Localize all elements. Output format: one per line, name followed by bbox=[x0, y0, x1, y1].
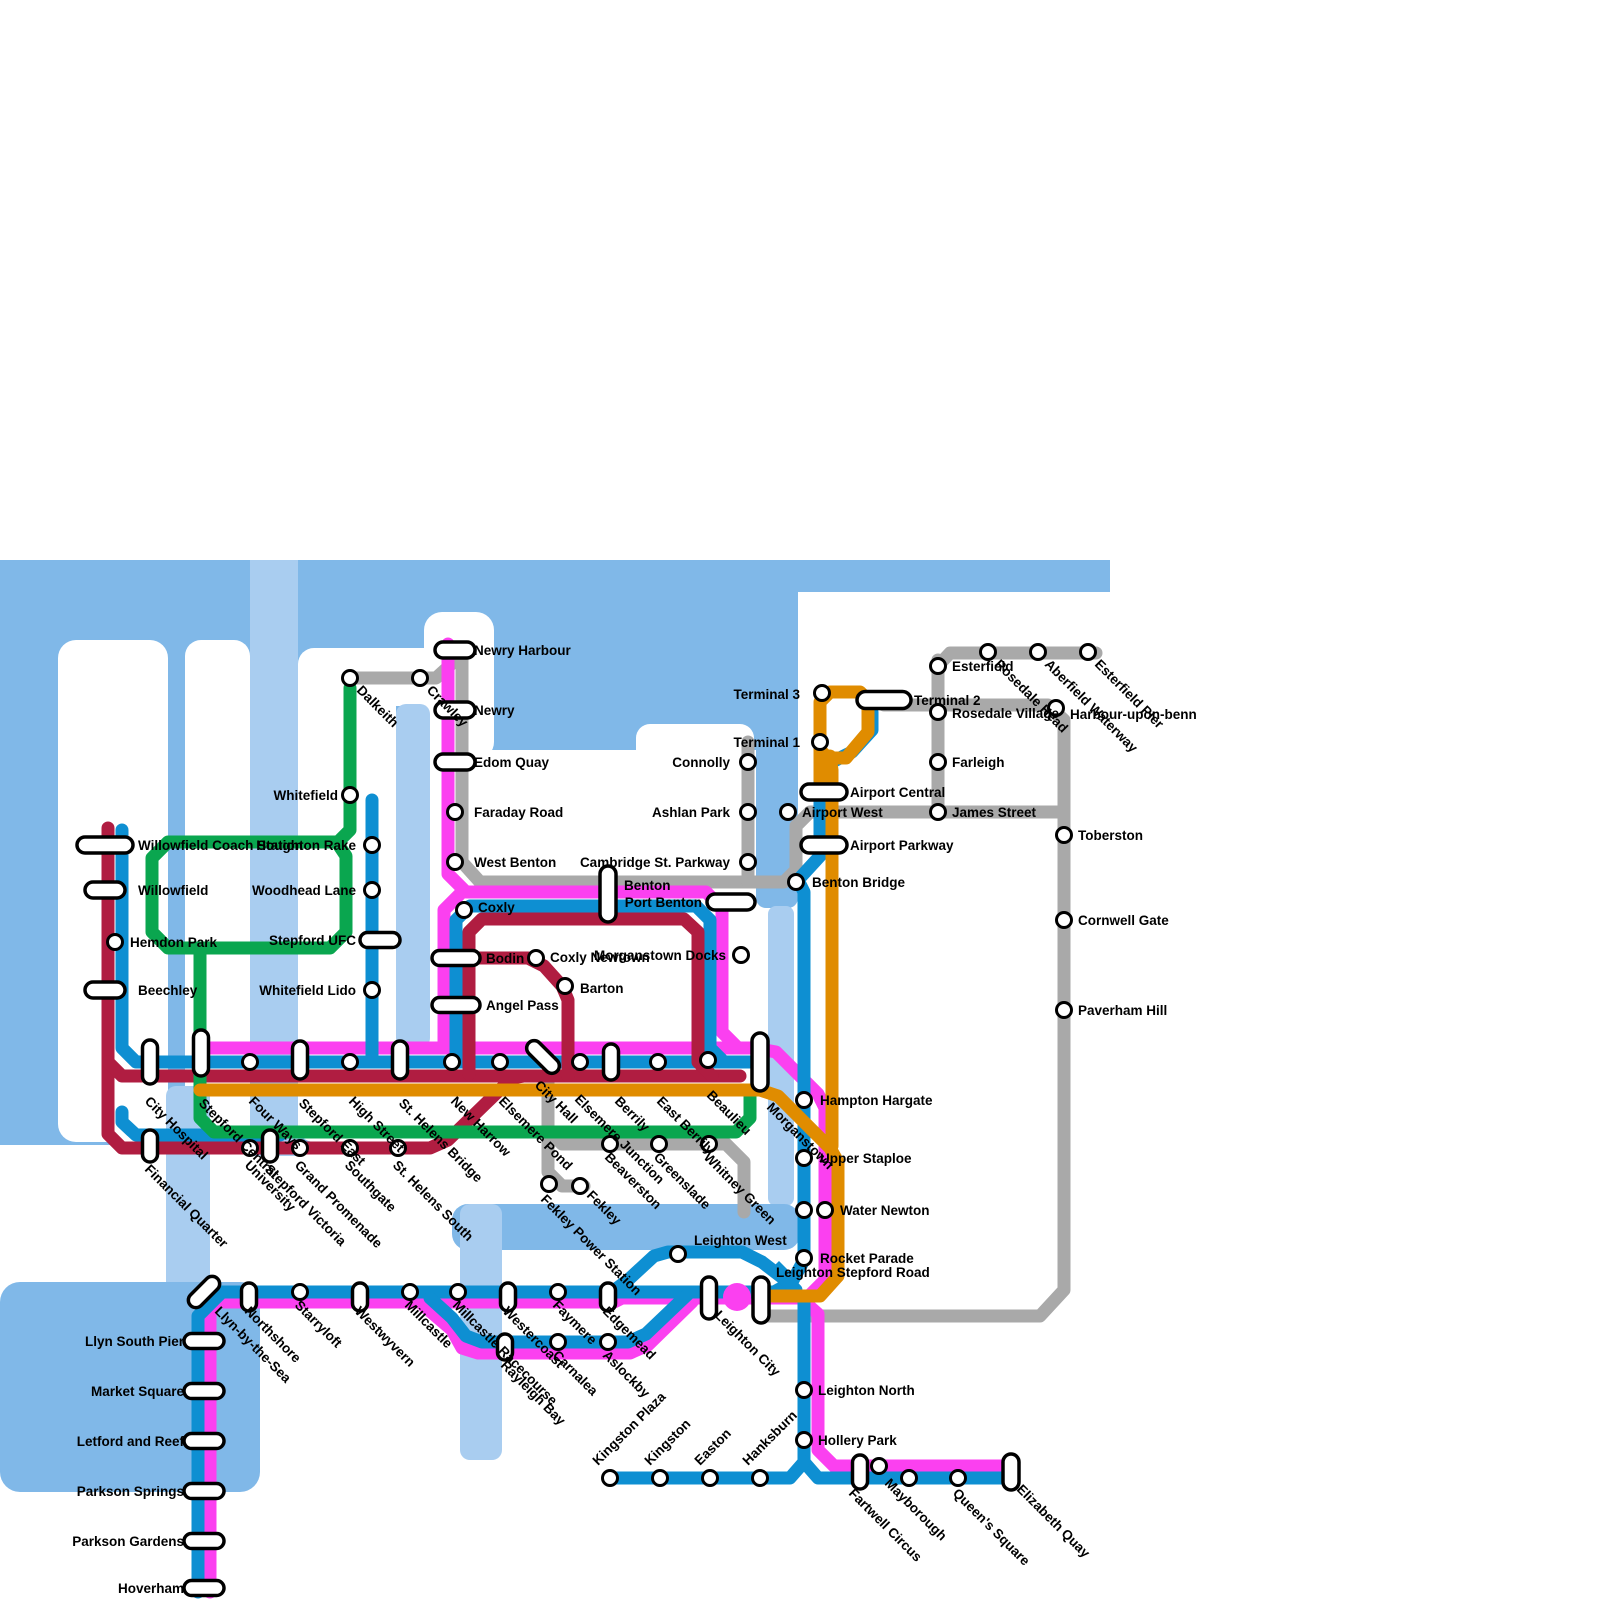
station-label-newry: Newry bbox=[474, 703, 515, 718]
station-label-cornwell-gate: Cornwell Gate bbox=[1078, 913, 1169, 928]
station-label-hoverham: Hoverham bbox=[118, 1581, 184, 1596]
station-label-newry-harbour: Newry Harbour bbox=[474, 643, 572, 658]
station-marker-coxly[interactable] bbox=[457, 903, 472, 918]
station-marker-fekley[interactable] bbox=[573, 1179, 588, 1194]
station-label-angel-pass: Angel Pass bbox=[486, 998, 559, 1013]
station-marker-letford-and-reef[interactable] bbox=[184, 1434, 224, 1449]
station-marker-stepford-central[interactable] bbox=[194, 1030, 209, 1076]
station-marker-fekley-power-station[interactable] bbox=[542, 1177, 557, 1192]
station-marker-financial-quarter[interactable] bbox=[143, 1130, 158, 1162]
station-marker-rocket-parade[interactable] bbox=[797, 1251, 812, 1266]
station-label-barton: Barton bbox=[580, 981, 624, 996]
station-marker-leighton-stepford-road[interactable] bbox=[753, 1277, 769, 1323]
station-label-rocket-parade: Rocket Parade bbox=[820, 1251, 914, 1266]
station-label-airport-central: Airport Central bbox=[850, 785, 945, 800]
station-marker-dalkeith[interactable] bbox=[343, 671, 358, 686]
station-label-bodin: Bodin bbox=[486, 951, 524, 966]
transit-map: Newry HarbourNewryEdom QuayFaraday RoadW… bbox=[0, 0, 1600, 1600]
station-label-benton-bridge: Benton Bridge bbox=[812, 875, 905, 890]
station-label-connolly: Connolly bbox=[672, 755, 730, 770]
station-label-beechley: Beechley bbox=[138, 983, 198, 998]
station-marker-cambridge-st-parkway[interactable] bbox=[741, 855, 756, 870]
station-marker-kingston-plaza[interactable] bbox=[603, 1471, 618, 1486]
station-marker-terminal-2[interactable] bbox=[857, 692, 911, 709]
station-label-parkson-gardens: Parkson Gardens bbox=[72, 1534, 184, 1549]
station-label-terminal-1: Terminal 1 bbox=[733, 735, 800, 750]
station-marker-cornwell-gate[interactable] bbox=[1057, 913, 1072, 928]
station-label-willowfield-coach-station: Willowfield Coach Station bbox=[138, 838, 303, 853]
station-label-faraday-road: Faraday Road bbox=[474, 805, 563, 820]
station-label-whitefield: Whitefield bbox=[274, 788, 339, 803]
station-marker-stepford-east[interactable] bbox=[293, 1041, 308, 1079]
transit-map-canvas: Newry HarbourNewryEdom QuayFaraday RoadW… bbox=[0, 0, 1600, 1600]
station-marker-benton[interactable] bbox=[600, 866, 616, 922]
station-label-parkson-springs: Parkson Springs bbox=[77, 1484, 184, 1499]
station-marker-toberston[interactable] bbox=[1057, 828, 1072, 843]
water-2 bbox=[0, 560, 1110, 592]
station-label-farleigh: Farleigh bbox=[952, 755, 1005, 770]
station-label-benton: Benton bbox=[624, 878, 671, 893]
station-marker-queens-square[interactable] bbox=[951, 1471, 966, 1486]
station-label-market-square: Market Square bbox=[91, 1384, 185, 1399]
station-marker-beechley[interactable] bbox=[85, 982, 125, 998]
station-marker-bodin[interactable] bbox=[432, 951, 480, 966]
station-label-elizabeth-quay: Elizabeth Quay bbox=[1014, 1482, 1093, 1561]
station-label-hemdon-park: Hemdon Park bbox=[130, 935, 218, 950]
station-label-hanksburn: Hanksburn bbox=[740, 1408, 800, 1468]
station-label-port-benton: Port Benton bbox=[625, 895, 702, 910]
station-marker-parkson-gardens[interactable] bbox=[184, 1534, 224, 1549]
station-marker-paverham-hill[interactable] bbox=[1057, 1003, 1072, 1018]
water2-2 bbox=[396, 704, 430, 1048]
station-label-edom-quay: Edom Quay bbox=[474, 755, 550, 770]
station-marker-airport-parkway[interactable] bbox=[801, 837, 847, 853]
station-marker-esterfield[interactable] bbox=[931, 659, 946, 674]
station-marker-llyn-south-pier[interactable] bbox=[184, 1334, 224, 1349]
station-label-ashlan-park: Ashlan Park bbox=[652, 805, 731, 820]
station-marker-woodhead-lane[interactable] bbox=[365, 883, 380, 898]
station-marker-beaulieu[interactable] bbox=[701, 1053, 716, 1068]
station-marker-morganstown-docks[interactable] bbox=[734, 948, 749, 963]
station-marker-connolly[interactable] bbox=[741, 755, 756, 770]
station-marker-hoverham[interactable] bbox=[184, 1581, 224, 1596]
station-marker-aslockby[interactable] bbox=[601, 1335, 616, 1350]
station-label-willowfield: Willowfield bbox=[138, 883, 208, 898]
station-label-woodhead-lane: Woodhead Lane bbox=[252, 883, 356, 898]
station-marker-elizabeth-quay[interactable] bbox=[1003, 1454, 1019, 1490]
station-marker-ashlan-park[interactable] bbox=[741, 805, 756, 820]
station-marker-willowfield[interactable] bbox=[85, 882, 125, 898]
station-marker-starryloft[interactable] bbox=[293, 1285, 308, 1300]
station-marker-parkson-springs[interactable] bbox=[184, 1484, 224, 1499]
station-marker-fartwell-circus[interactable] bbox=[853, 1455, 868, 1489]
station-marker-mayborough[interactable] bbox=[872, 1459, 887, 1474]
station-label-whitefield-lido: Whitefield Lido bbox=[259, 983, 356, 998]
station-marker-leighton-north[interactable] bbox=[797, 1383, 812, 1398]
station-marker-terminal-3[interactable] bbox=[815, 686, 830, 701]
station-marker-crawley[interactable] bbox=[413, 671, 428, 686]
station-marker-aberfield-waterway[interactable] bbox=[1031, 645, 1046, 660]
station-label-llyn-south-pier: Llyn South Pier bbox=[85, 1334, 185, 1349]
station-label-airport-west: Airport West bbox=[802, 805, 883, 820]
station-marker-elsemere-pond[interactable] bbox=[493, 1055, 508, 1070]
station-marker-edom-quay[interactable] bbox=[435, 754, 475, 770]
station-marker-kingston[interactable] bbox=[653, 1471, 668, 1486]
station-label-airport-parkway: Airport Parkway bbox=[850, 838, 954, 853]
station-marker-airport-central[interactable] bbox=[801, 784, 847, 800]
station-marker-four-ways[interactable] bbox=[243, 1055, 258, 1070]
station-marker-st-helens-bridge[interactable] bbox=[393, 1041, 408, 1079]
station-marker-mayborough-east[interactable] bbox=[902, 1471, 917, 1486]
station-label-coxly-newtown: Coxly Newtown bbox=[550, 950, 650, 965]
station-marker-water-newton-west[interactable] bbox=[797, 1203, 812, 1218]
station-label-terminal-3: Terminal 3 bbox=[733, 687, 800, 702]
station-marker-leighton-city-centre[interactable] bbox=[723, 1283, 751, 1311]
station-marker-stepford-ufc[interactable] bbox=[360, 933, 400, 948]
station-label-james-street: James Street bbox=[952, 805, 1037, 820]
station-marker-easton[interactable] bbox=[703, 1471, 718, 1486]
station-label-cambridge-st-parkway: Cambridge St. Parkway bbox=[580, 855, 731, 870]
station-marker-millcastle[interactable] bbox=[403, 1285, 418, 1300]
station-marker-morganstown[interactable] bbox=[752, 1033, 768, 1091]
station-marker-rosedale-head[interactable] bbox=[981, 645, 996, 660]
station-label-leighton-north: Leighton North bbox=[818, 1383, 915, 1398]
station-marker-leighton-city[interactable] bbox=[702, 1277, 717, 1319]
station-marker-farleigh[interactable] bbox=[931, 755, 946, 770]
station-label-paverham-hill: Paverham Hill bbox=[1078, 1003, 1167, 1018]
station-label-hollery-park: Hollery Park bbox=[818, 1433, 897, 1448]
station-label-leighton-west: Leighton West bbox=[694, 1233, 787, 1248]
station-marker-newry-harbour[interactable] bbox=[435, 642, 475, 658]
station-marker-hampton-hargate[interactable] bbox=[797, 1093, 812, 1108]
station-marker-houghton-rake[interactable] bbox=[365, 838, 380, 853]
station-marker-james-street[interactable] bbox=[931, 805, 946, 820]
station-marker-terminal-1[interactable] bbox=[813, 735, 828, 750]
station-marker-hollery-park[interactable] bbox=[797, 1433, 812, 1448]
station-marker-new-harrow[interactable] bbox=[445, 1055, 460, 1070]
station-marker-city-hospital[interactable] bbox=[143, 1040, 158, 1084]
station-marker-faraday-road[interactable] bbox=[448, 805, 463, 820]
station-marker-leighton-west[interactable] bbox=[671, 1247, 686, 1262]
station-marker-willowfield-coach-station[interactable] bbox=[77, 837, 133, 853]
station-marker-high-street[interactable] bbox=[343, 1055, 358, 1070]
station-marker-west-benton[interactable] bbox=[448, 855, 463, 870]
station-marker-esterfield-pier[interactable] bbox=[1081, 645, 1096, 660]
station-label-water-newton: Water Newton bbox=[840, 1203, 930, 1218]
station-marker-water-newton[interactable] bbox=[818, 1203, 833, 1218]
station-marker-barton[interactable] bbox=[558, 979, 573, 994]
station-marker-market-square[interactable] bbox=[184, 1384, 224, 1399]
station-marker-elsemere-junction[interactable] bbox=[573, 1055, 588, 1070]
station-marker-millcastle-racecourse[interactable] bbox=[451, 1285, 466, 1300]
station-marker-east-berrily[interactable] bbox=[651, 1055, 666, 1070]
station-marker-berrily[interactable] bbox=[604, 1044, 619, 1080]
station-marker-hanksburn[interactable] bbox=[753, 1471, 768, 1486]
station-label-toberston: Toberston bbox=[1078, 828, 1143, 843]
station-marker-whitefield-lido[interactable] bbox=[365, 983, 380, 998]
station-marker-airport-west[interactable] bbox=[781, 805, 796, 820]
station-label-stepford-ufc: Stepford UFC bbox=[269, 933, 356, 948]
station-label-west-benton: West Benton bbox=[474, 855, 556, 870]
station-label-coxly: Coxly bbox=[478, 900, 515, 915]
station-label-hampton-hargate: Hampton Hargate bbox=[820, 1093, 933, 1108]
station-marker-coxly-newtown[interactable] bbox=[529, 951, 544, 966]
station-label-leighton-stepford-road: Leighton Stepford Road bbox=[776, 1265, 930, 1280]
station-label-easton: Easton bbox=[692, 1426, 734, 1468]
station-marker-faymere[interactable] bbox=[551, 1285, 566, 1300]
station-marker-port-benton[interactable] bbox=[707, 894, 755, 910]
station-marker-angel-pass[interactable] bbox=[432, 998, 480, 1013]
station-marker-whitefield[interactable] bbox=[343, 788, 358, 803]
station-label-kingston: Kingston bbox=[642, 1416, 694, 1468]
station-marker-hemdon-park[interactable] bbox=[108, 935, 123, 950]
station-label-letford-and-reef: Letford and Reef bbox=[77, 1434, 185, 1449]
station-marker-benton-bridge[interactable] bbox=[789, 875, 804, 890]
station-marker-greenslade[interactable] bbox=[652, 1137, 667, 1152]
